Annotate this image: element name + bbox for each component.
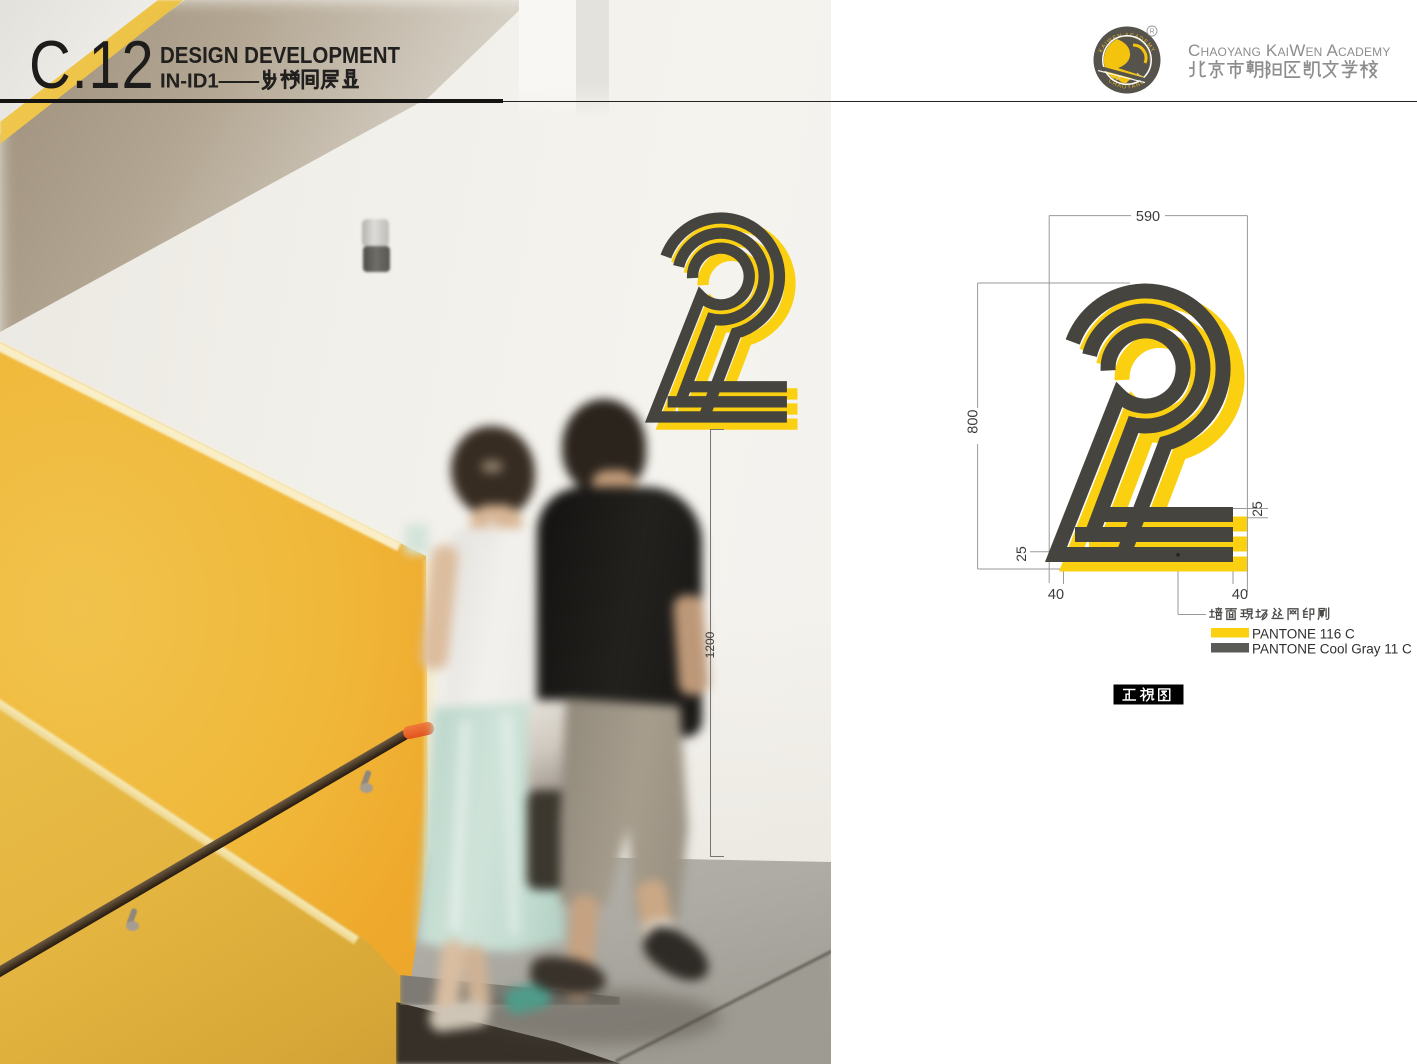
svg-text:800: 800	[966, 409, 982, 433]
svg-text:25: 25	[1013, 546, 1029, 562]
svg-text:25: 25	[1249, 501, 1265, 517]
svg-text:590: 590	[1136, 209, 1160, 225]
svg-text:PANTONE Cool Gray 11 C: PANTONE Cool Gray 11 C	[1252, 642, 1412, 657]
svg-text:PANTONE 116 C: PANTONE 116 C	[1252, 627, 1355, 642]
svg-text:40: 40	[1232, 587, 1248, 603]
svg-text:40: 40	[1048, 587, 1064, 603]
svg-text:R: R	[1149, 29, 1154, 36]
